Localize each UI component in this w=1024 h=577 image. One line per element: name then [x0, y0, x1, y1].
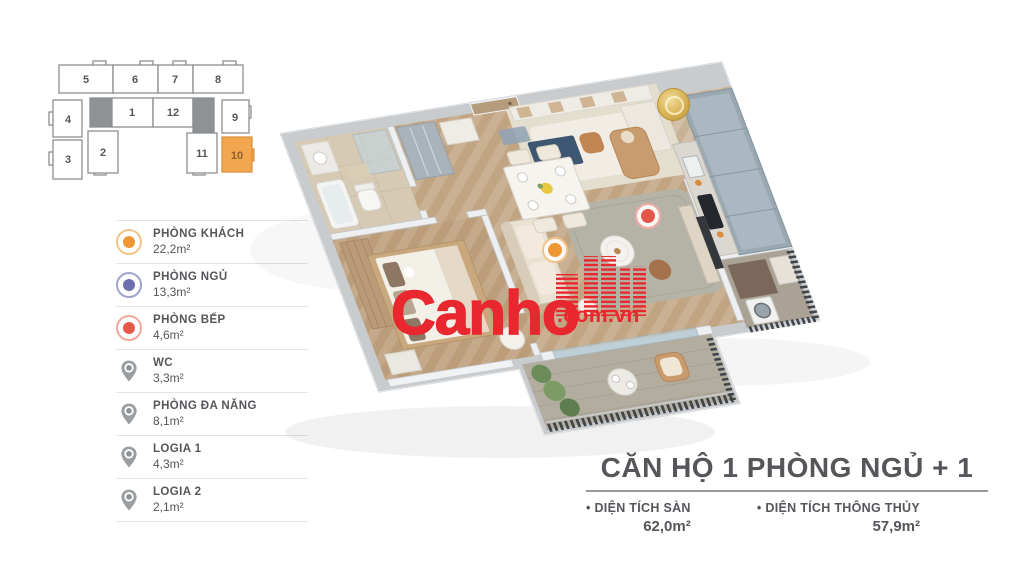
- stat-floor-area: • DIỆN TÍCH SÀN 62,0m²: [586, 501, 691, 535]
- gold-wall-emblem: [657, 88, 690, 121]
- stat-value: 62,0m²: [586, 518, 691, 535]
- dining-chair: [506, 149, 532, 165]
- unit-title: CĂN HỘ 1 PHÒNG NGỦ + 1: [586, 452, 988, 484]
- stat-label: DIỆN TÍCH THÔNG THỦY: [765, 501, 920, 515]
- unit-info-block: CĂN HỘ 1 PHÒNG NGỦ + 1 • DIỆN TÍCH SÀN 6…: [586, 452, 988, 535]
- stat-carpet-area: • DIỆN TÍCH THÔNG THỦY 57,9m²: [757, 501, 920, 535]
- stat-label: DIỆN TÍCH SÀN: [594, 501, 690, 515]
- dining-chair: [562, 212, 588, 228]
- bullet: •: [757, 501, 762, 515]
- kitchen-marker: [635, 203, 661, 229]
- watermark-domain: .com.vn: [557, 304, 640, 328]
- dining-chair: [532, 217, 558, 233]
- bullet: •: [586, 501, 591, 515]
- unit-stats: • DIỆN TÍCH SÀN 62,0m² • DIỆN TÍCH THÔNG…: [586, 501, 920, 535]
- dining-chair: [536, 144, 562, 160]
- watermark-brand: Canho: [391, 283, 579, 345]
- title-rule: [586, 490, 988, 492]
- stat-value: 57,9m²: [757, 518, 920, 535]
- page: 5 6 7 8 4 1 12 9 3 2 11 10 PHÒNG KHÁCH 2…: [0, 0, 1024, 577]
